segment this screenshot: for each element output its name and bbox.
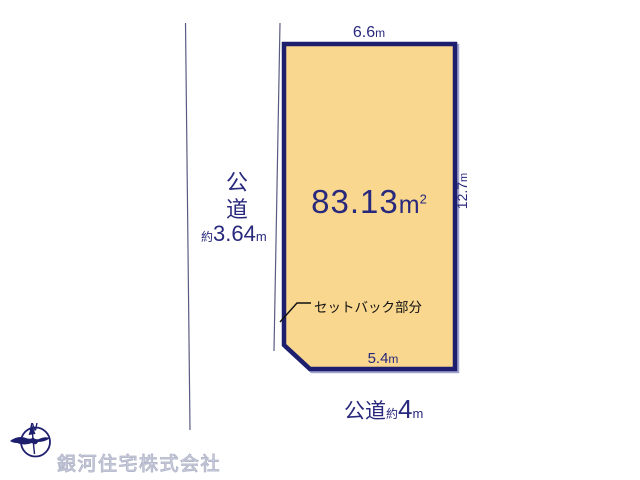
road-edge-line-left [186, 23, 191, 430]
land-plot-diagram: N 6.6m 12.7m 83.13m2 セットバック部分 5.4m 公 道 約… [0, 0, 640, 480]
dimension-bottom: 5.4m [353, 350, 413, 367]
setback-boundary-line [274, 23, 280, 351]
plot-area-unit: m2 [399, 191, 427, 219]
compass-icon: N [10, 422, 50, 457]
road-left-approx: 約 [201, 230, 213, 244]
road-left-width: 約3.64m [201, 221, 267, 247]
road-bottom-label: 公道約4m [344, 394, 423, 425]
road-left-char-1: 公 [224, 169, 250, 196]
dimension-bottom-unit: m [388, 352, 398, 366]
road-left-unit: m [256, 229, 267, 244]
plot-area-label: 83.13m2 [288, 183, 450, 221]
dimension-top-unit: m [375, 26, 385, 40]
diagram-canvas: N [0, 0, 640, 480]
dimension-right-unit: m [458, 173, 470, 182]
plot-area-value: 83.13 [311, 183, 399, 220]
road-left-char-2: 道 [224, 196, 250, 223]
dimension-bottom-value: 5.4 [368, 350, 389, 367]
dimension-right: 12.7m [454, 161, 472, 221]
road-bottom-unit: m [412, 406, 423, 421]
setback-label: セットバック部分 [314, 296, 422, 316]
road-bottom-name: 公道 [344, 400, 386, 423]
compass-bird-shape [10, 437, 50, 445]
dimension-right-value: 12.7 [454, 182, 470, 209]
dimension-top: 6.6m [337, 24, 401, 42]
company-watermark: 銀河住宅株式会社 [57, 449, 221, 476]
plot-area-superscript: 2 [420, 192, 427, 207]
road-left-label: 公 道 [224, 169, 250, 223]
road-left-value: 3.64 [213, 221, 256, 246]
road-bottom-value: 4 [398, 394, 412, 424]
dimension-top-value: 6.6 [353, 24, 375, 41]
road-bottom-approx: 約 [386, 407, 398, 421]
